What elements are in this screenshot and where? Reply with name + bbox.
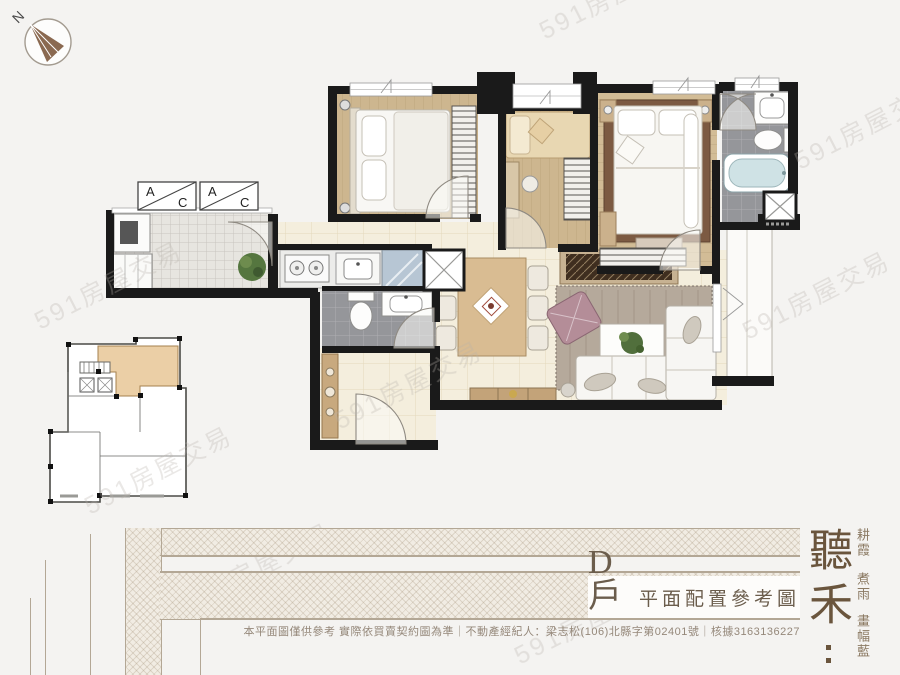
window — [350, 80, 432, 96]
plan-title-box: D戶 平面配置參考圖 — [588, 576, 800, 618]
wall-lamp — [340, 100, 350, 110]
laundry-sink-basin — [120, 221, 138, 244]
watermark-text: 591房屋交易 — [790, 77, 900, 176]
floor-lamp — [561, 383, 575, 397]
band-line-vertical — [45, 560, 46, 675]
dining-chair — [528, 296, 548, 320]
pillow — [618, 110, 655, 135]
centerpiece-dot — [488, 303, 494, 309]
toilet-bowl — [754, 130, 782, 150]
table-plant-leaf — [636, 345, 644, 353]
faucet — [356, 262, 360, 266]
band-line-vertical — [30, 598, 31, 675]
bay-window — [513, 84, 581, 108]
compass: N — [9, 8, 71, 65]
plant-leaf — [253, 267, 263, 277]
ac-label-a: A — [146, 184, 155, 199]
burner-dot — [295, 266, 299, 270]
window — [735, 76, 779, 91]
body-pillow — [684, 114, 698, 228]
bath1-basin — [760, 98, 784, 118]
ac-label-c: C — [178, 195, 187, 210]
lamp — [604, 106, 612, 114]
band-hatch-top — [125, 528, 800, 557]
plan-caption: 平面配置參考圖 — [639, 584, 800, 614]
toilet-bowl — [350, 302, 372, 330]
band-line-vertical — [90, 534, 91, 675]
brand-colon-dot — [826, 658, 831, 663]
brand-colon-dot — [826, 645, 831, 650]
brand-tagline: 耕霞 — [853, 528, 872, 558]
band-line-vertical — [200, 618, 201, 675]
plant-leaf — [240, 256, 252, 268]
window — [653, 78, 715, 94]
faucet — [404, 295, 408, 299]
plant — [238, 253, 266, 281]
kitchen — [280, 250, 424, 290]
vase — [326, 368, 334, 376]
floorplan-page: { "title": { "unit": "D戶", "caption": "平… — [0, 0, 900, 675]
wall-lamp — [340, 203, 350, 213]
band-line — [160, 555, 800, 556]
burner-dot — [314, 266, 318, 270]
pillow — [362, 160, 386, 200]
watermark-text: 591房屋交易 — [535, 0, 693, 45]
ac-platforms: A C A C — [138, 182, 258, 210]
bed3-wardrobe — [564, 158, 592, 220]
drain — [782, 171, 786, 175]
faucet — [770, 93, 774, 97]
decor-bowl — [509, 390, 517, 398]
dining-chair — [528, 326, 548, 350]
kitchen-sink-basin — [344, 259, 372, 279]
brand-tagline: 煮雨 — [853, 572, 872, 602]
bathtub-water — [729, 159, 785, 187]
ac-label-a: A — [208, 184, 217, 199]
entry — [322, 354, 338, 438]
desk-chair — [522, 176, 538, 192]
compass-north-label: N — [9, 8, 27, 26]
unit-label: D戶 — [588, 546, 629, 614]
band-hatch-left — [125, 528, 162, 675]
vase — [325, 387, 335, 397]
table-plant-leaf — [619, 332, 629, 342]
dresser — [600, 212, 616, 246]
brand-name: 聽禾 — [804, 527, 848, 635]
disclaimer-text: 本平面圖僅供參考 實際依買賣契約圖為準｜不動產經紀人：梁志松(106)北縣字第0… — [244, 623, 801, 639]
band-line — [200, 618, 800, 619]
dining-chair — [528, 266, 548, 290]
stairs — [80, 362, 110, 373]
pillow — [362, 116, 386, 156]
toilet-tank — [348, 292, 374, 301]
pillow — [510, 116, 530, 154]
ac-label-c: C — [240, 195, 249, 210]
brand-tagline: 畫幅藍 — [853, 614, 872, 659]
